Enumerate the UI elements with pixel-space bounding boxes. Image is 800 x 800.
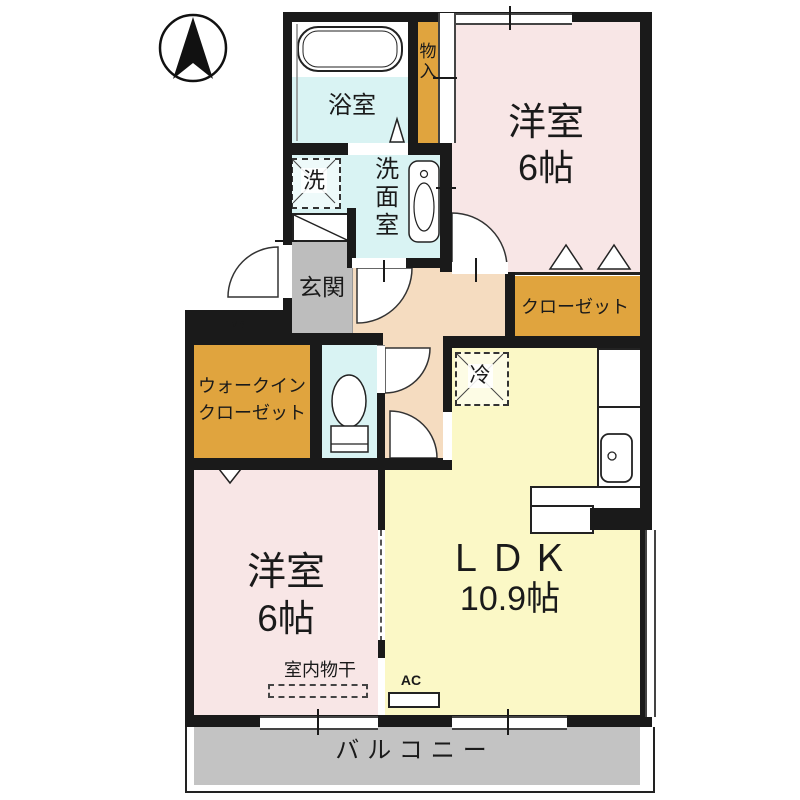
wall-left-upper xyxy=(283,12,292,245)
bedroom-bottom-label: 洋室 xyxy=(196,551,376,596)
washroom-label: 洗面室 xyxy=(370,156,398,240)
wall-left-main xyxy=(185,345,194,727)
wall-bottom xyxy=(185,715,652,727)
indoor-drying-label: 室内物干 xyxy=(268,660,372,681)
wall-partition-stub-top xyxy=(378,468,385,530)
wall-ldk-top xyxy=(443,336,652,348)
tick-bedroom-top-door xyxy=(475,258,477,282)
wall-bedroom-bottom-top xyxy=(185,458,452,470)
meter-box-label: MB xyxy=(192,318,283,333)
toilet-door-arc xyxy=(385,348,430,393)
tick-window-storage xyxy=(433,77,457,79)
closet-door-triangle-2 xyxy=(598,245,630,269)
wash-basin-icon xyxy=(409,161,439,242)
toilet-doorway-gap xyxy=(377,345,385,393)
window-balcony-ldk xyxy=(452,716,567,730)
tick-window-balcony-1 xyxy=(317,709,319,735)
wall-strip-right xyxy=(443,348,452,412)
washroom-doorway-gap xyxy=(352,258,406,268)
walkin-closet-label-2: クローゼット xyxy=(194,403,310,424)
kitchen-sink-icon xyxy=(601,434,632,482)
ldk-label: ＬＤＫ xyxy=(420,538,600,581)
tick-window-balcony-2 xyxy=(507,709,509,735)
bathroom-label: 浴室 xyxy=(312,92,392,120)
bedroom-top-door-arc xyxy=(452,213,507,268)
walkin-closet-label-1: ウォークイン xyxy=(194,376,310,397)
tick-washroom-wall xyxy=(436,187,456,189)
balcony-label: バルコニー xyxy=(285,737,545,765)
shoe-cabinet-diagonal xyxy=(294,215,347,240)
tick-window-top xyxy=(509,6,511,30)
bedroom-top-doorway-gap xyxy=(452,262,508,274)
wic-door-triangle xyxy=(219,469,241,483)
closet-label: クローゼット xyxy=(510,297,640,318)
ldk-size: 10.9帖 xyxy=(420,580,600,619)
wall-genkan-bottom xyxy=(283,333,383,345)
bedroom-top-label: 洋室 xyxy=(466,102,626,146)
window-right-side xyxy=(645,530,656,717)
floor-plan: 浴室 物入 洋室 6帖 洗面室 洗 玄関 MB クローゼット ウォークイン クロ… xyxy=(0,0,800,800)
ldk-doorway-gap xyxy=(443,412,452,460)
wall-wic-toilet xyxy=(310,345,322,458)
bath-doorway-gap xyxy=(348,143,408,155)
toilet-icon xyxy=(331,375,368,452)
wall-washroom-bedroom xyxy=(440,143,452,272)
compass-north-icon xyxy=(160,15,226,81)
wall-kitchen-block xyxy=(590,508,640,530)
genkan-label: 玄関 xyxy=(282,274,362,300)
ldk-door-arc xyxy=(390,411,437,458)
window-balcony-bedroom xyxy=(260,716,378,730)
closet-door-triangle-1 xyxy=(550,245,582,269)
fridge-label: 冷 xyxy=(455,364,505,388)
bedroom-bottom-size: 6帖 xyxy=(196,598,376,641)
window-top xyxy=(452,13,572,25)
partition-open-gap xyxy=(378,658,385,715)
tick-entrance-door xyxy=(275,240,297,242)
entrance-door-arc xyxy=(228,247,278,297)
ac-label: AC xyxy=(385,672,437,688)
washer-label: 洗 xyxy=(291,168,337,193)
wall-right-upper xyxy=(640,12,652,530)
tick-washroom-door xyxy=(383,260,385,282)
bathtub-icon xyxy=(298,27,402,71)
wall-partition-stub-bottom xyxy=(378,640,385,658)
storage-label: 物入 xyxy=(416,42,436,82)
bedroom-top-size: 6帖 xyxy=(466,147,626,188)
wall-toilet-right xyxy=(377,392,385,458)
bath-door-triangle xyxy=(390,119,404,142)
